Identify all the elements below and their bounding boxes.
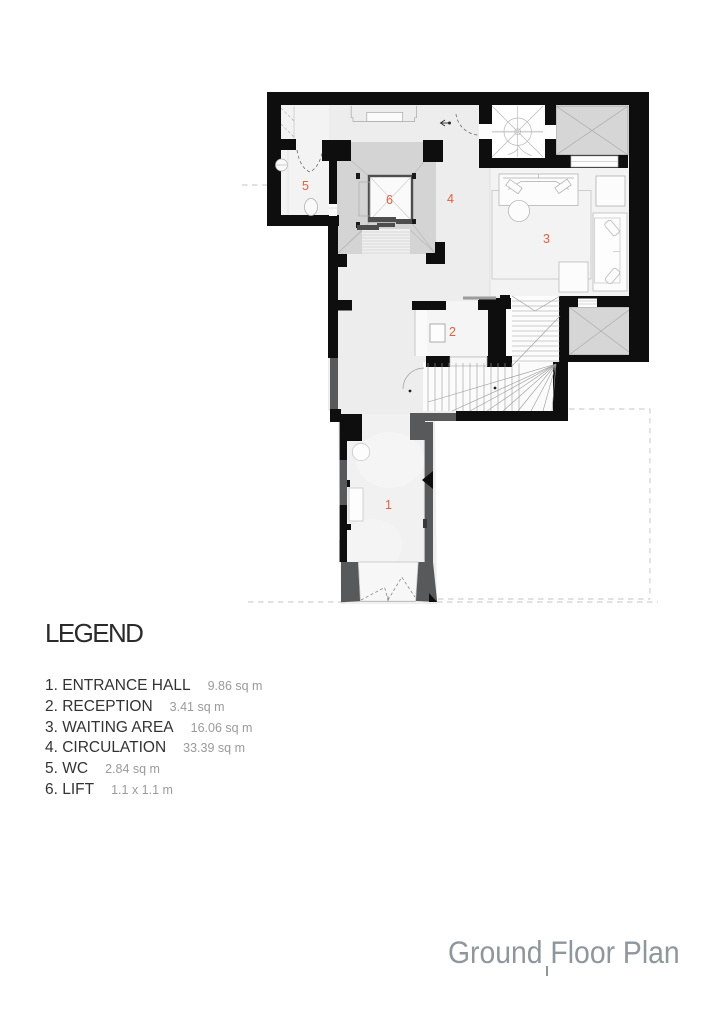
svg-text:1: 1 — [385, 498, 392, 512]
svg-text:2: 2 — [449, 325, 456, 339]
svg-text:3: 3 — [543, 232, 550, 246]
svg-text:5: 5 — [302, 179, 309, 193]
svg-text:6: 6 — [386, 193, 393, 207]
svg-text:4: 4 — [447, 192, 454, 206]
